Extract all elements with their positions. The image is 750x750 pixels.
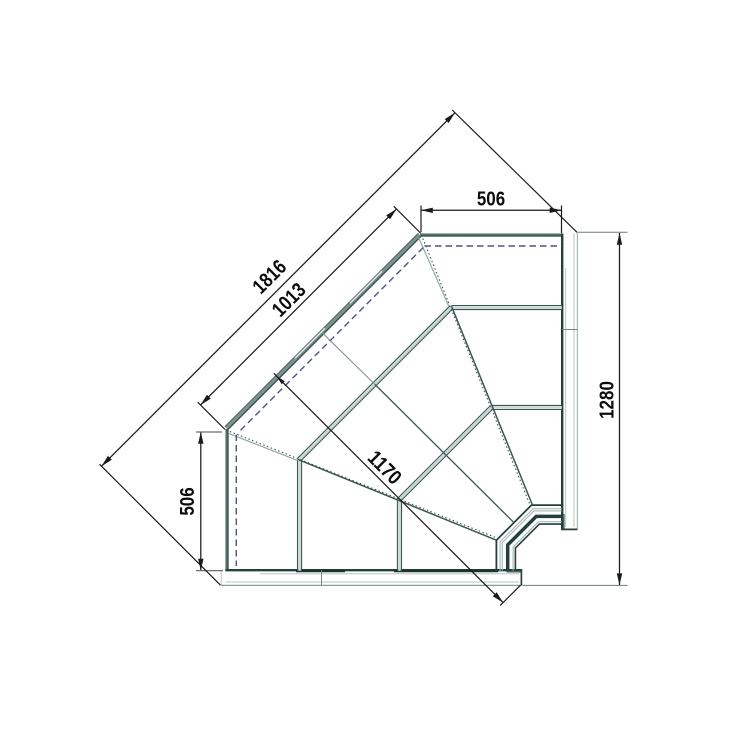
svg-text:506: 506 bbox=[477, 188, 505, 211]
svg-text:1280: 1280 bbox=[596, 381, 619, 419]
svg-text:506: 506 bbox=[176, 487, 199, 515]
